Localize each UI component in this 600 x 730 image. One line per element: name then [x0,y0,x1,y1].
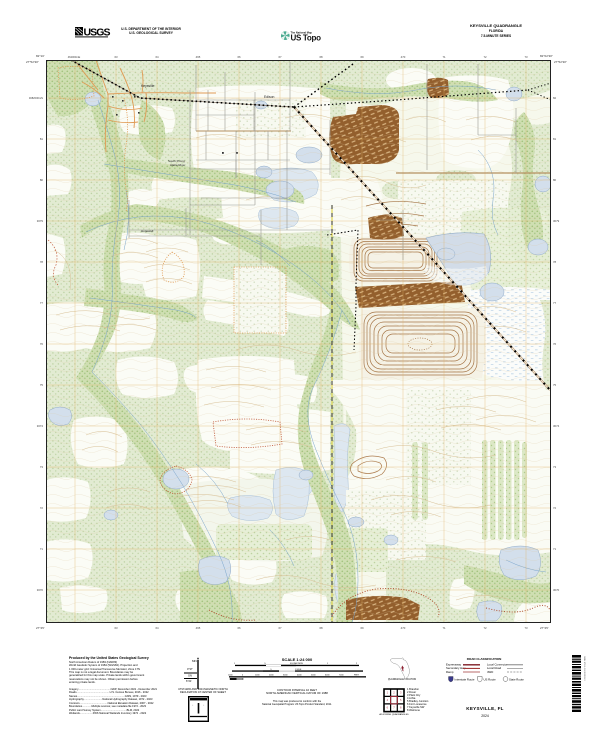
svg-text:462000mE: 462000mE [68,55,81,59]
svg-text:71: 71 [442,55,446,59]
svg-text:3074: 3074 [553,424,560,428]
svg-text:82: 82 [553,96,557,100]
svg-text:72: 72 [553,506,557,510]
svg-text:+: + [203,705,205,707]
svg-text:3074: 3074 [37,424,44,428]
svg-text:80: 80 [553,178,557,182]
svg-text:Edison: Edison [264,95,274,99]
svg-text:73: 73 [524,55,528,59]
svg-text:3079: 3079 [553,219,560,223]
svg-text:+: + [192,705,194,707]
svg-text:US Topo: US Topo [291,33,322,42]
svg-text:80: 80 [40,178,44,182]
svg-text:KILOMETERS: KILOMETERS [290,663,304,665]
svg-text:Ramp: Ramp [446,669,454,673]
svg-text:73: 73 [40,465,44,469]
svg-text:71: 71 [442,626,446,630]
svg-text:Hopewell: Hopewell [141,229,154,233]
svg-text:63: 63 [114,55,118,59]
svg-text:76: 76 [40,342,44,346]
svg-text:81: 81 [553,137,557,141]
svg-text:465: 465 [196,55,201,59]
svg-text:67: 67 [278,55,282,59]
svg-text:3079: 3079 [37,219,44,223]
svg-text:64: 64 [155,55,159,59]
svg-text:64: 64 [155,626,159,630]
svg-text:GN: GN [188,674,192,678]
svg-text:75: 75 [40,383,44,387]
svg-text:1 MILE: 1 MILE [295,669,302,671]
svg-text:Keysville: Keysville [141,84,154,88]
svg-text:72: 72 [483,626,487,630]
svg-text:US Route: US Route [484,677,497,681]
svg-text:66: 66 [237,626,241,630]
svg-text:76: 76 [553,342,557,346]
svg-text:78: 78 [40,260,44,264]
svg-text:68: 68 [319,626,323,630]
svg-text:465: 465 [196,626,201,630]
svg-text:3070: 3070 [553,588,560,592]
svg-text:68: 68 [319,55,323,59]
svg-text:470: 470 [401,626,406,630]
svg-text:78: 78 [553,260,557,264]
svg-text:72: 72 [483,55,487,59]
svg-text:3082000mN: 3082000mN [29,96,43,100]
svg-text:4WD: 4WD [487,669,493,673]
svg-text:69: 69 [360,626,364,630]
svg-text:Alafia River: Alafia River [170,163,185,167]
svg-text:69: 69 [360,55,364,59]
svg-text:0°37': 0°37' [187,667,193,671]
svg-text:66: 66 [237,55,241,59]
svg-text:77: 77 [553,301,557,305]
svg-text:63: 63 [114,626,118,630]
svg-text:3070: 3070 [37,588,44,592]
svg-text:FEET: FEET [354,675,360,677]
svg-text:73: 73 [524,626,528,630]
svg-text:71: 71 [553,547,557,551]
svg-text:75: 75 [553,383,557,387]
svg-text:81: 81 [40,137,44,141]
svg-text:71: 71 [40,547,44,551]
svg-text:67: 67 [278,626,282,630]
svg-text:6°21': 6°21' [186,679,192,683]
svg-text:Interstate Route: Interstate Route [455,677,475,681]
svg-text:77: 77 [40,301,44,305]
svg-text:72: 72 [40,506,44,510]
svg-text:470: 470 [401,55,406,59]
svg-text:73: 73 [553,465,557,469]
svg-text:MN: MN [192,659,197,663]
svg-text:State Route: State Route [509,677,524,681]
